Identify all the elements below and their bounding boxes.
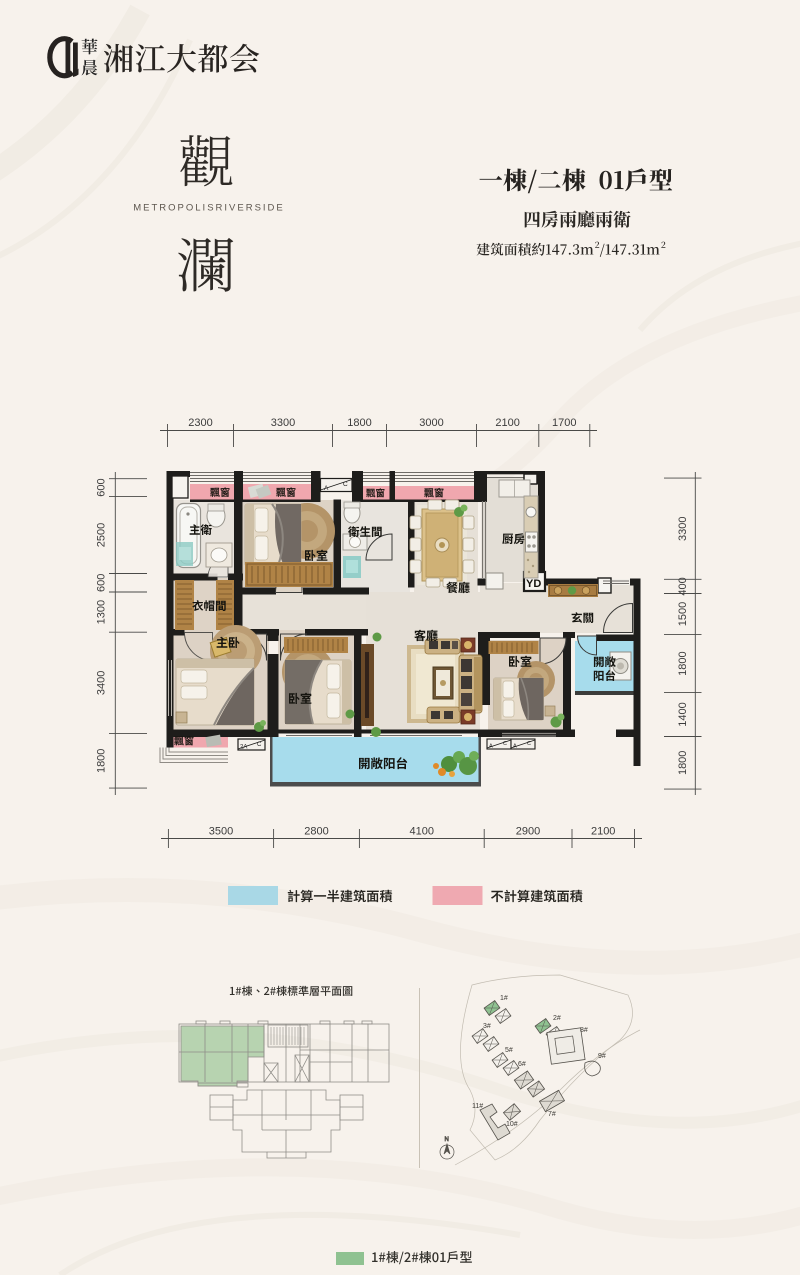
- svg-text:C: C: [343, 481, 348, 488]
- svg-text:C: C: [257, 742, 262, 748]
- svg-text:1800: 1800: [347, 417, 371, 429]
- svg-text:1800: 1800: [677, 651, 689, 675]
- svg-text:3500: 3500: [209, 826, 233, 838]
- svg-text:8#: 8#: [580, 1027, 588, 1034]
- svg-text:5#: 5#: [505, 1047, 513, 1054]
- svg-text:10#: 10#: [506, 1121, 518, 1128]
- svg-text:3400: 3400: [96, 671, 108, 695]
- svg-text:1#: 1#: [500, 995, 508, 1002]
- svg-text:A: A: [513, 744, 517, 750]
- svg-text:1700: 1700: [552, 417, 576, 429]
- svg-text:1500: 1500: [677, 602, 689, 626]
- svg-text:1800: 1800: [96, 749, 108, 773]
- svg-text:N: N: [445, 1137, 449, 1143]
- svg-text:2800: 2800: [304, 826, 328, 838]
- svg-text:1800: 1800: [677, 751, 689, 775]
- svg-text:2A: 2A: [240, 745, 247, 751]
- svg-text:400: 400: [677, 577, 689, 595]
- svg-text:A: A: [324, 485, 329, 492]
- svg-text:3000: 3000: [419, 417, 443, 429]
- svg-text:YD: YD: [526, 578, 541, 590]
- svg-text:9#: 9#: [598, 1053, 606, 1060]
- svg-text:1300: 1300: [96, 600, 108, 624]
- svg-text:2100: 2100: [591, 826, 615, 838]
- svg-text:2100: 2100: [495, 417, 519, 429]
- svg-text:C: C: [503, 741, 507, 747]
- svg-text:3300: 3300: [677, 516, 689, 540]
- svg-text:2#: 2#: [553, 1015, 561, 1022]
- svg-text:11#: 11#: [472, 1103, 483, 1110]
- svg-text:600: 600: [96, 574, 108, 592]
- svg-text:3300: 3300: [271, 417, 295, 429]
- svg-text:7#: 7#: [548, 1111, 556, 1118]
- svg-text:A: A: [489, 744, 493, 750]
- svg-text:METROPOLISRIVERSIDE: METROPOLISRIVERSIDE: [133, 203, 285, 214]
- svg-text:600: 600: [96, 478, 108, 496]
- svg-text:6#: 6#: [518, 1061, 526, 1068]
- svg-text:C: C: [527, 741, 531, 747]
- svg-text:2500: 2500: [96, 523, 108, 547]
- svg-text:3#: 3#: [483, 1023, 491, 1030]
- svg-text:2900: 2900: [516, 826, 540, 838]
- svg-text:4100: 4100: [410, 826, 434, 838]
- svg-text:1400: 1400: [677, 702, 689, 726]
- svg-text:2300: 2300: [188, 417, 212, 429]
